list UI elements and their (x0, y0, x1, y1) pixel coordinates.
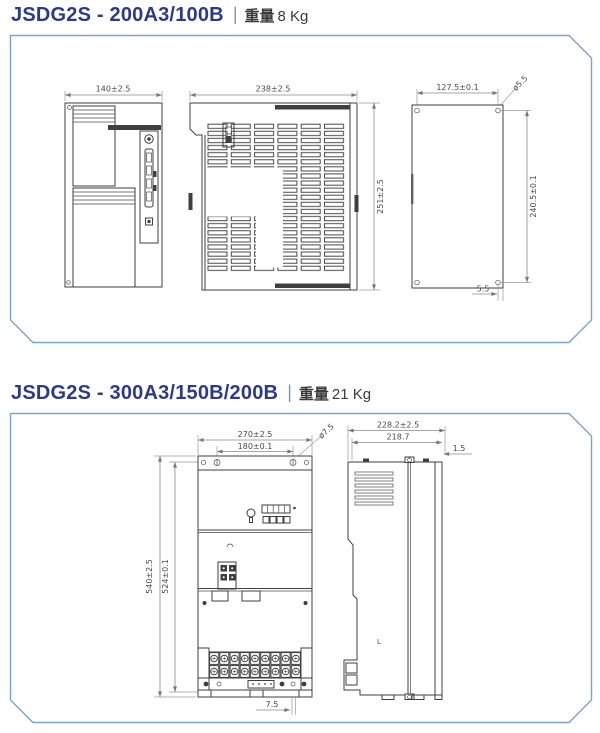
model-number: JSDG2S - 200A3/100B (11, 4, 224, 27)
dim-vent-height: 251±2.5 (376, 179, 385, 214)
title-divider: | (287, 382, 292, 403)
dim-plate-thickness: 1.5 (453, 444, 466, 453)
dim-plate-width: 127.5±0.1 (436, 83, 478, 92)
dim-side-inner-depth: 218.7 (387, 433, 410, 442)
section1-drawing-panel: 140±2.5 (10, 35, 592, 343)
weight-label: 重量 (245, 5, 275, 26)
model-number: JSDG2S - 300A3/150B/200B (11, 382, 278, 405)
dim-front-width: 140±2.5 (96, 85, 131, 94)
dim-plate-edge-offset: 5.5 (477, 285, 490, 294)
front-view-200a: 140±2.5 (65, 85, 162, 288)
dim-hole-span: 180±0.1 (238, 442, 273, 451)
side-mark-label: L (377, 638, 381, 646)
dim-plate-height: 240.5±0.1 (529, 175, 538, 217)
front-top-bar (108, 125, 161, 130)
section1-title: JSDG2S - 200A3/100B | 重量 8 Kg (11, 4, 308, 27)
weight-value: 8 Kg (278, 8, 309, 25)
section2-title: JSDG2S - 300A3/150B/200B | 重量 21 Kg (11, 382, 371, 405)
dim-bottom-hole-offset: 7.5 (266, 700, 279, 709)
dim-vent-width: 238±2.5 (256, 85, 291, 94)
dim-hole-height: 524±0.1 (161, 559, 170, 594)
vent-view-200a: 238±2.5 251±2.5 (189, 85, 386, 291)
weight-label: 重量 (299, 383, 329, 404)
dim-side-depth: 228.2±2.5 (377, 421, 419, 430)
dim-front-height: 540±2.5 (145, 559, 154, 594)
catalog-page: JSDG2S - 200A3/100B | 重量 8 Kg 140±2.5 (0, 0, 600, 733)
weight-value: 21 Kg (332, 386, 371, 403)
title-divider: | (233, 4, 238, 25)
section2-drawing-panel: 270±2.5 180±0.1 ø7.5 540±2.5 524±0.1 (10, 413, 592, 723)
dim-front-width: 270±2.5 (238, 430, 273, 439)
terminal-block (198, 648, 312, 697)
